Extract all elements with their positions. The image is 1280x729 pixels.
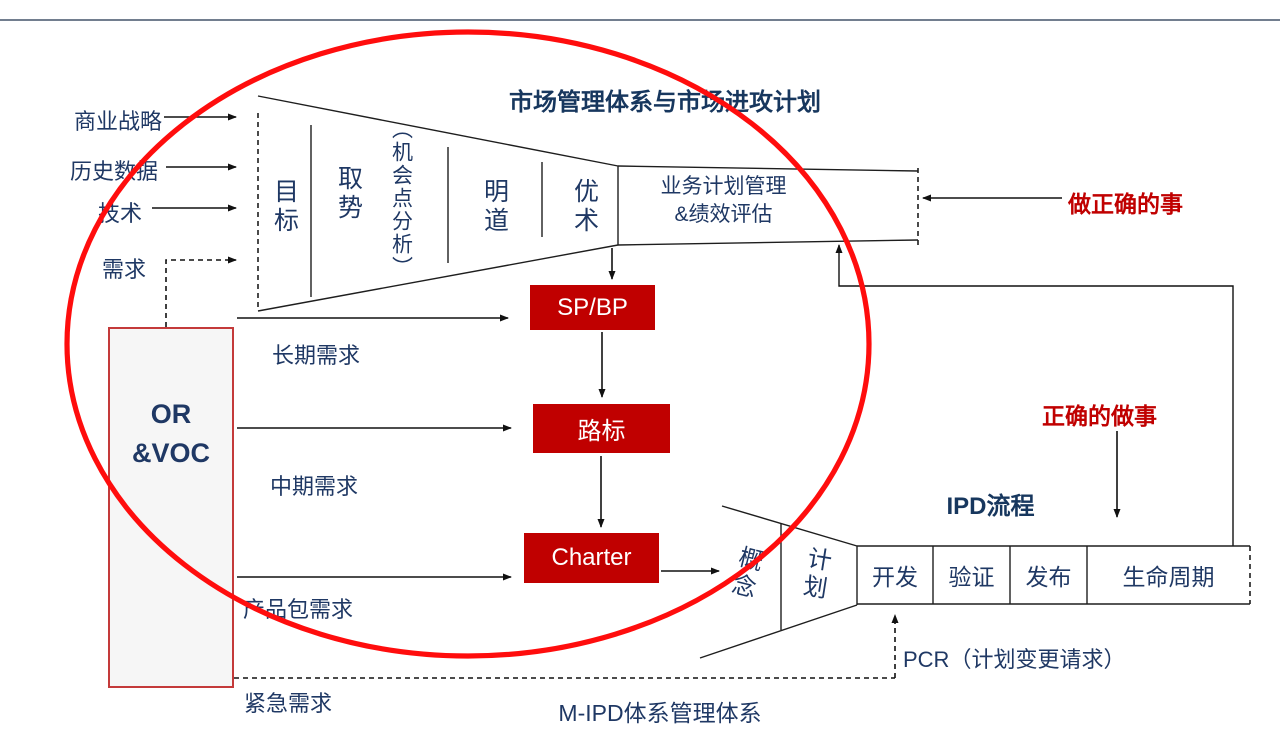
business-plan-management-label: 业务计划管理 &绩效评估 — [636, 173, 811, 230]
input-history-data: 历史数据 — [68, 154, 160, 186]
label-pcr: PCR（计划变更请求） — [903, 642, 1125, 674]
funnel-neck-bottom — [618, 240, 918, 245]
business-plan-management-line1: 业务计划管理 — [636, 173, 811, 201]
funnel-col-goal: 目标 — [269, 162, 299, 252]
ipd-process-title: IPD流程 — [928, 486, 1053, 521]
label-urgent-demand: 紧急需求 — [238, 686, 338, 718]
ipd-funnel-bottom-slant — [700, 605, 857, 658]
spbp-box: SP/BP — [530, 285, 655, 330]
funnel-col-trend: 取势 — [333, 149, 363, 239]
ipd-stage-release: 发布 — [1010, 548, 1087, 602]
ipd-stage-lifecycle: 生命周期 — [1087, 548, 1250, 602]
label-m-ipd-system: M-IPD体系管理体系 — [510, 694, 810, 728]
input-demand: 需求 — [96, 252, 152, 284]
ipd-stage-develop: 开发 — [857, 548, 933, 602]
funnel-col-optimize-method: 优术 — [569, 162, 599, 252]
label-do-right-things: 做正确的事 — [1068, 185, 1183, 219]
label-product-pkg-demand: 产品包需求 — [236, 592, 360, 624]
arrow-demand-dashed — [166, 260, 236, 327]
or-voc-box: OR &VOC — [108, 327, 234, 688]
ipd-stage-verify: 验证 — [933, 548, 1010, 602]
diagram-title: 市场管理体系与市场进攻计划 — [450, 82, 880, 117]
funnel-neck-top — [618, 166, 918, 171]
funnel-col-clarify-path: 明道 — [479, 162, 509, 252]
business-plan-management-line2: &绩效评估 — [636, 201, 811, 229]
input-business-strategy: 商业战略 — [72, 104, 164, 136]
or-voc-line2: &VOC — [132, 434, 210, 473]
label-do-things-right: 正确的做事 — [1042, 397, 1157, 431]
roadmap-box: 路标 — [533, 404, 670, 453]
input-technology: 技术 — [92, 196, 148, 228]
label-long-term-demand: 长期需求 — [266, 338, 366, 370]
label-mid-term-demand: 中期需求 — [264, 469, 364, 501]
or-voc-line1: OR — [151, 395, 192, 434]
slide-canvas: 市场管理体系与市场进攻计划 商业战略 历史数据 技术 需求 目标 取势 （机会点… — [0, 0, 1280, 729]
funnel-col-opportunity-analysis: （机会点分析） — [385, 112, 417, 284]
charter-box: Charter — [524, 533, 659, 583]
